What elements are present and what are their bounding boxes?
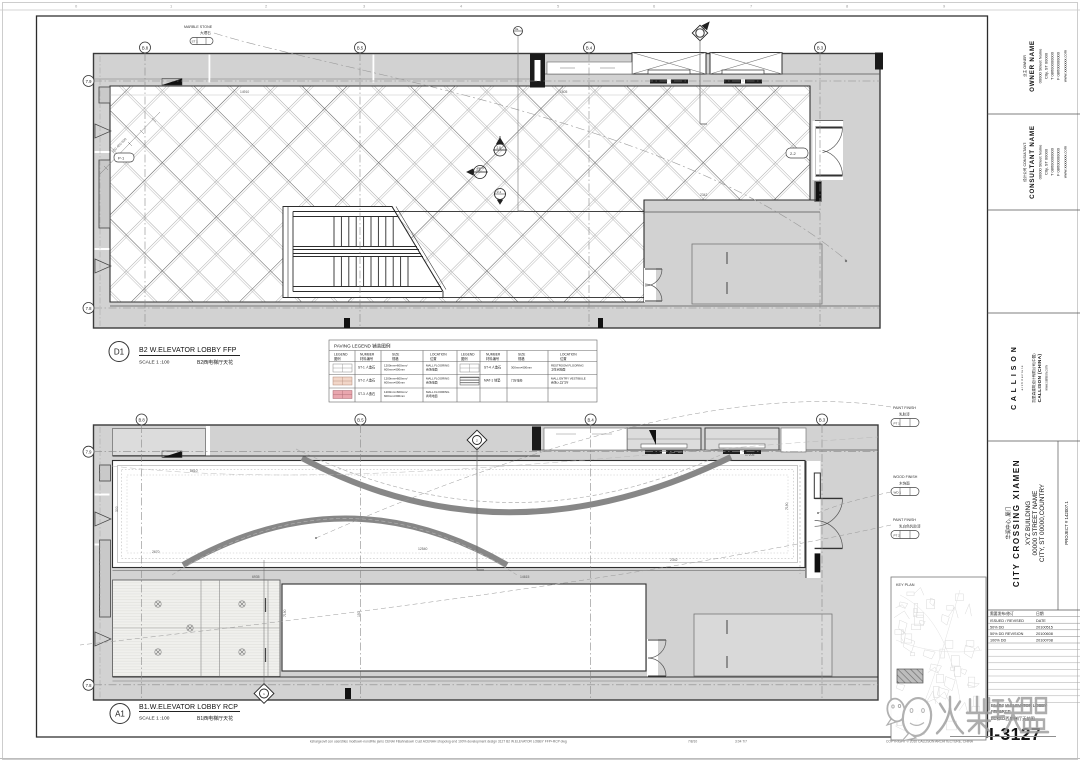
svg-text:I-3127: I-3127 bbox=[989, 724, 1041, 744]
svg-text:14910: 14910 bbox=[240, 90, 249, 94]
svg-text:1605: 1605 bbox=[560, 90, 568, 94]
svg-text:A1: A1 bbox=[115, 710, 125, 719]
svg-text:LEGEND: LEGEND bbox=[334, 353, 348, 357]
svg-text:7.9: 7.9 bbox=[86, 79, 92, 84]
svg-text:50% DD: 50% DD bbox=[990, 625, 1004, 629]
svg-text:B.3: B.3 bbox=[819, 418, 826, 423]
svg-text:WOOD FINISH: WOOD FINISH bbox=[893, 475, 918, 479]
svg-text:B.8: B.8 bbox=[142, 46, 149, 51]
svg-text:3.6: 3.6 bbox=[476, 168, 481, 172]
svg-text:B.4: B.4 bbox=[586, 46, 593, 51]
svg-text:3a: 3a bbox=[515, 27, 519, 31]
svg-text:PROJECT # 142007.1: PROJECT # 142007.1 bbox=[1064, 501, 1069, 545]
svg-text:150: 150 bbox=[357, 611, 361, 617]
svg-text:CITY CROSSING XIAMEN: CITY CROSSING XIAMEN bbox=[1012, 459, 1021, 587]
svg-text:F 08600000000: F 08600000000 bbox=[1056, 147, 1061, 176]
svg-text:B1西电梯厅天花: B1西电梯厅天花 bbox=[197, 715, 233, 722]
svg-text:50% DD REVISION: 50% DD REVISION bbox=[990, 632, 1024, 636]
svg-text:www.callison.com: www.callison.com bbox=[1045, 365, 1049, 390]
svg-text:MAT-1 地垫: MAT-1 地垫 bbox=[484, 378, 501, 383]
svg-text:12540: 12540 bbox=[418, 547, 428, 551]
svg-text:WD 1: WD 1 bbox=[894, 491, 902, 495]
svg-text:7190: 7190 bbox=[785, 502, 789, 510]
svg-text:CITY, ST 00000,COUNTRY: CITY, ST 00000,COUNTRY bbox=[1039, 483, 1046, 562]
svg-text:00000 Street Name: 00000 Street Name bbox=[1038, 48, 1043, 83]
svg-text:PAVING LEGEND 铺装图例: PAVING LEGEND 铺装图例 bbox=[334, 343, 391, 350]
svg-text:PAINT FINISH: PAINT FINISH bbox=[893, 518, 916, 522]
svg-text:大理石: 大理石 bbox=[200, 30, 211, 35]
svg-text:2342: 2342 bbox=[670, 558, 678, 562]
svg-text:B1.W.ELEVATOR LOBBY RCP: B1.W.ELEVATOR LOBBY RCP bbox=[139, 704, 238, 711]
svg-text:20100515: 20100515 bbox=[1036, 625, 1053, 629]
svg-text:2-2: 2-2 bbox=[790, 151, 797, 156]
svg-text:7.8: 7.8 bbox=[86, 306, 92, 311]
svg-text:凯里森建筑设计有限公司(中国): 凯里森建筑设计有限公司(中国) bbox=[1031, 353, 1036, 402]
svg-text:NUMBER: NUMBER bbox=[486, 353, 501, 357]
svg-text:B.8: B.8 bbox=[138, 418, 145, 423]
svg-text:日期: 日期 bbox=[1036, 611, 1044, 616]
svg-text:商场地面: 商场地面 bbox=[426, 380, 438, 385]
svg-text:600mm×600mm: 600mm×600mm bbox=[384, 394, 406, 398]
svg-text:B2西电梯厅天花: B2西电梯厅天花 bbox=[197, 359, 233, 366]
svg-text:8610: 8610 bbox=[190, 469, 198, 473]
svg-text:商场地面: 商场地面 bbox=[426, 393, 438, 398]
svg-text:3:04 7/7: 3:04 7/7 bbox=[735, 740, 747, 744]
svg-text:ST-4 人造石: ST-4 人造石 bbox=[484, 365, 501, 370]
svg-text:XYZ BUILDING: XYZ BUILDING bbox=[1025, 501, 1032, 545]
svg-text:PAINT FINISH: PAINT FINISH bbox=[893, 406, 916, 410]
svg-text:商场入口门厅: 商场入口门厅 bbox=[551, 380, 568, 385]
svg-text:600mm×600mm: 600mm×600mm bbox=[384, 368, 406, 372]
svg-text:C A L L I S O N: C A L L I S O N bbox=[1011, 346, 1018, 410]
svg-text:规格: 规格 bbox=[518, 356, 525, 361]
svg-text:P-1: P-1 bbox=[118, 156, 125, 161]
svg-text:图例: 图例 bbox=[461, 356, 468, 361]
svg-text:ST-3 人造石: ST-3 人造石 bbox=[358, 391, 375, 396]
svg-text:LOCATION: LOCATION bbox=[430, 353, 447, 357]
svg-text:City, ST 00000: City, ST 00000 bbox=[1044, 52, 1049, 79]
svg-text:7/8/10: 7/8/10 bbox=[688, 740, 697, 744]
svg-text:DATE: DATE bbox=[1036, 619, 1046, 623]
svg-text:600mm×600mm: 600mm×600mm bbox=[384, 381, 406, 385]
svg-text:2342: 2342 bbox=[700, 193, 708, 197]
svg-text:00000 Street Name: 00000 Street Name bbox=[1038, 144, 1043, 179]
svg-text:City, ST 00000: City, ST 00000 bbox=[1044, 148, 1049, 175]
svg-text:D1: D1 bbox=[114, 348, 125, 357]
svg-text:7.9: 7.9 bbox=[86, 450, 92, 455]
svg-text:B.5: B.5 bbox=[357, 418, 364, 423]
svg-text:7190: 7190 bbox=[283, 609, 287, 617]
svg-text:CONSULTANT NAME: CONSULTANT NAME bbox=[1029, 125, 1036, 199]
svg-text:300: 300 bbox=[115, 506, 119, 512]
svg-text:OWNER NAME: OWNER NAME bbox=[1029, 40, 1036, 92]
svg-text:B.3: B.3 bbox=[817, 46, 824, 51]
svg-text:20100608: 20100608 bbox=[1036, 632, 1053, 636]
svg-text:木饰面: 木饰面 bbox=[899, 481, 910, 486]
svg-text:SIZE: SIZE bbox=[518, 353, 526, 357]
svg-text:14615: 14615 bbox=[520, 575, 530, 579]
svg-text:KEY PLAN: KEY PLAN bbox=[896, 583, 915, 587]
svg-text:LEGEND: LEGEND bbox=[461, 353, 475, 357]
svg-text:B.4: B.4 bbox=[587, 418, 594, 423]
svg-text:业主 OWNER: 业主 OWNER bbox=[1022, 55, 1027, 77]
svg-text:商场地面: 商场地面 bbox=[426, 367, 438, 372]
svg-text:2670: 2670 bbox=[152, 550, 160, 554]
svg-text:300mm×600mm: 300mm×600mm bbox=[511, 366, 533, 370]
svg-text:2.8: 2.8 bbox=[497, 146, 502, 150]
svg-text:乳白色乳胶漆: 乳白色乳胶漆 bbox=[899, 524, 921, 529]
svg-text:B.5: B.5 bbox=[357, 46, 364, 51]
svg-text:材料编号: 材料编号 bbox=[486, 356, 500, 361]
svg-text:6935: 6935 bbox=[252, 575, 260, 579]
svg-text:乳胶漆: 乳胶漆 bbox=[899, 412, 910, 417]
svg-text:00000 STREET NAME: 00000 STREET NAME bbox=[1032, 491, 1039, 556]
svg-text:T 08600000000: T 08600000000 bbox=[1050, 51, 1055, 80]
svg-text:华润中心, 厦门: 华润中心, 厦门 bbox=[1005, 507, 1012, 540]
svg-text:MARBLE STONE: MARBLE STONE bbox=[184, 25, 213, 29]
svg-text:F 08600000000: F 08600000000 bbox=[1056, 51, 1061, 80]
svg-text:位置: 位置 bbox=[430, 356, 437, 361]
svg-text:PT 2: PT 2 bbox=[894, 534, 901, 538]
svg-text:位置: 位置 bbox=[560, 356, 567, 361]
svg-text:门厅地垫: 门厅地垫 bbox=[511, 378, 523, 383]
svg-text:a r c h i t e c t u r e: a r c h i t e c t u r e bbox=[1020, 365, 1024, 390]
svg-text:ISSUED / REVISED: ISSUED / REVISED bbox=[990, 619, 1024, 623]
svg-text:设计公司 CONSULTANT:: 设计公司 CONSULTANT: bbox=[1022, 142, 1027, 182]
svg-text:规格: 规格 bbox=[392, 356, 399, 361]
svg-text:B2 W.ELEVATOR LOBBY FFP: B2 W.ELEVATOR LOBBY FFP bbox=[139, 347, 237, 354]
svg-text:PT 1: PT 1 bbox=[894, 422, 901, 426]
svg-text:SCALE 1 :100: SCALE 1 :100 bbox=[139, 360, 170, 366]
svg-text:LOCATION: LOCATION bbox=[560, 353, 577, 357]
svg-text:SCALE 1 :100: SCALE 1 :100 bbox=[139, 716, 170, 722]
svg-text:需要发布/修订: 需要发布/修订 bbox=[990, 611, 1014, 616]
svg-text:T 08600000000: T 08600000000 bbox=[1050, 147, 1055, 176]
svg-text:NUMBER: NUMBER bbox=[360, 353, 375, 357]
svg-text:ST-1 人造石: ST-1 人造石 bbox=[358, 365, 375, 370]
svg-text:kshargeovit con userstiles mo: kshargeovit con userstiles modtown-nondF… bbox=[310, 740, 567, 744]
svg-text:20100708: 20100708 bbox=[1036, 639, 1053, 643]
svg-text:材料编号: 材料编号 bbox=[360, 356, 374, 361]
svg-text:100% DD: 100% DD bbox=[990, 639, 1007, 643]
svg-text:www.xxxxxxx.com: www.xxxxxxx.com bbox=[1063, 145, 1068, 178]
svg-text:CALLISON (CHINA): CALLISON (CHINA) bbox=[1037, 354, 1042, 403]
svg-text:ST-2 人造石: ST-2 人造石 bbox=[358, 378, 375, 383]
svg-text:www.xxxxxxx.com: www.xxxxxxx.com bbox=[1063, 49, 1068, 82]
svg-text:SIZE: SIZE bbox=[392, 353, 400, 357]
svg-text:7.8: 7.8 bbox=[86, 683, 92, 688]
svg-text:卫生间地面: 卫生间地面 bbox=[551, 367, 566, 372]
svg-text:17205: 17205 bbox=[745, 453, 755, 457]
svg-text:COPYRIGHT © 2010 CALLISON ARC: COPYRIGHT © 2010 CALLISON ARCHITECTURE, … bbox=[886, 740, 974, 744]
svg-text:ST 1: ST 1 bbox=[192, 40, 199, 44]
svg-text:2.4: 2.4 bbox=[497, 190, 502, 194]
svg-text:图例: 图例 bbox=[334, 356, 341, 361]
